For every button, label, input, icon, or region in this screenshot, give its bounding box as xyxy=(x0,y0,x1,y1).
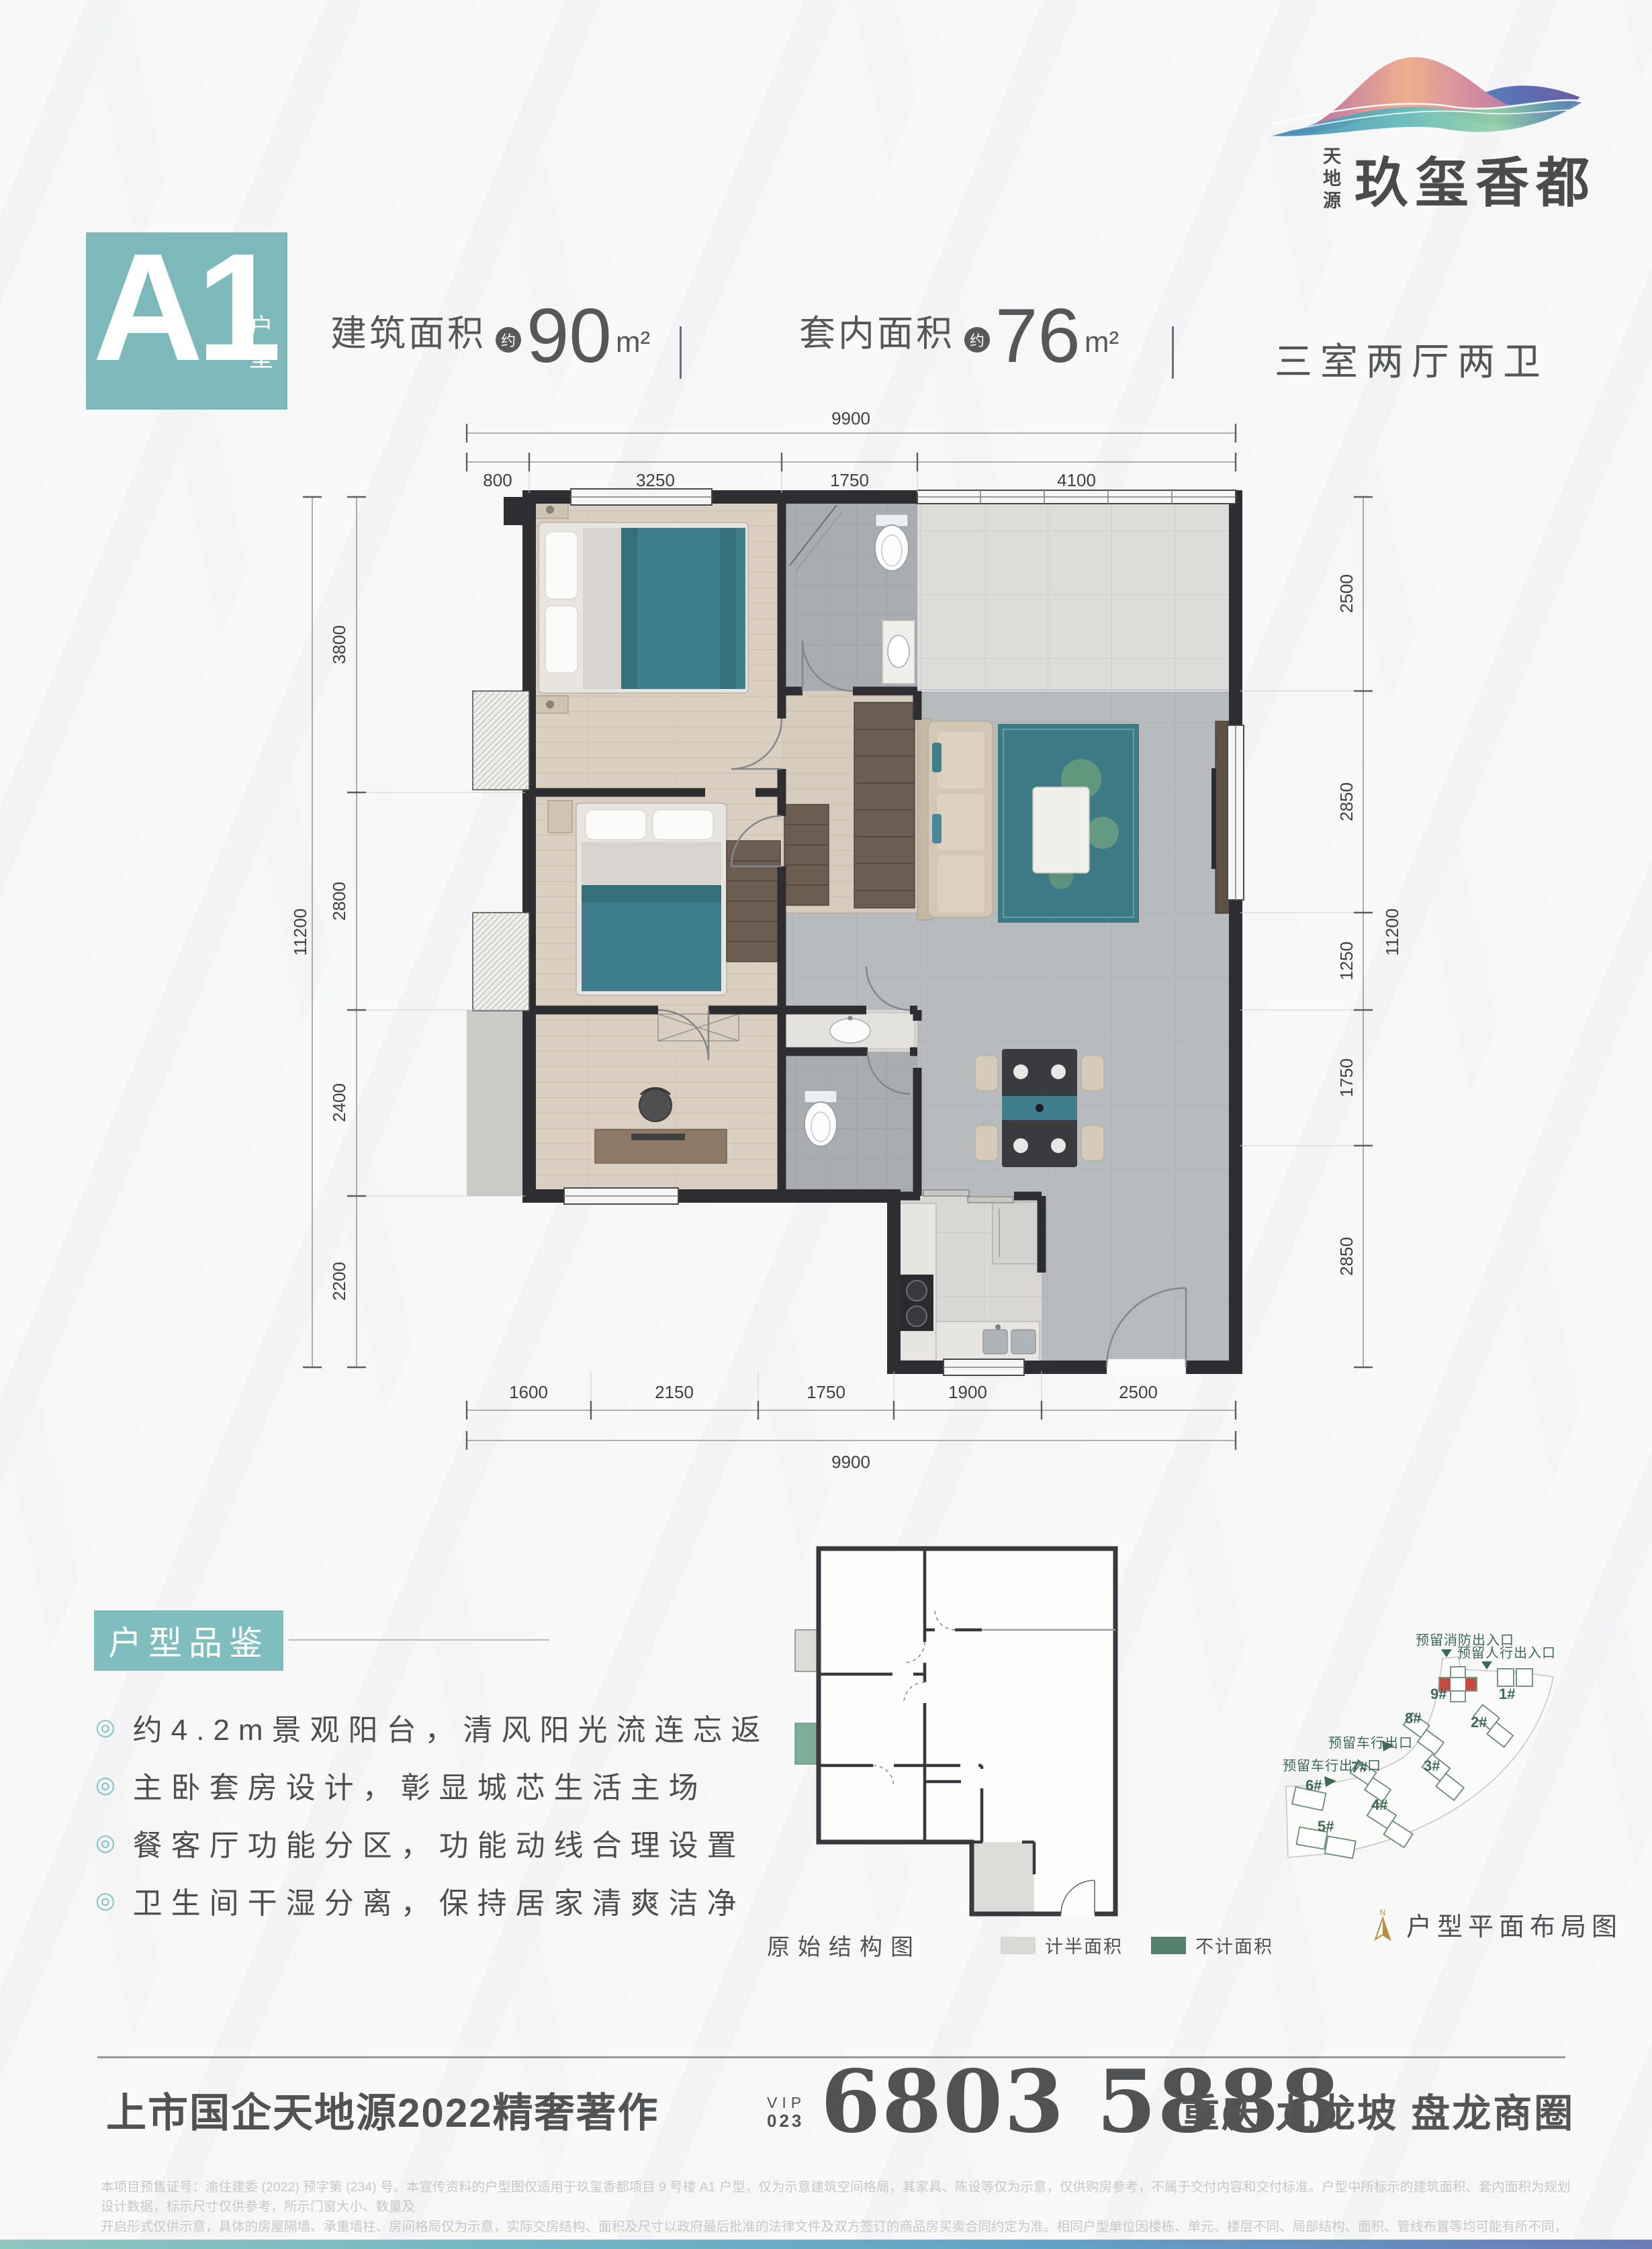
excluded-area-bay xyxy=(795,1723,819,1764)
dim-bottom-seg: 2500 xyxy=(1119,1382,1158,1402)
dim-top-seg: 1750 xyxy=(830,470,869,490)
dim-top-seg: 3250 xyxy=(636,470,675,490)
vip-label: VIP xyxy=(767,2094,806,2111)
brand-name: 玖玺香都 xyxy=(1355,140,1596,218)
footer-slogan: 上市国企天地源2022精奢著作 xyxy=(106,2080,659,2139)
feature-item: ◎ 餐客厅功能分区，功能动线合理设置 xyxy=(95,1821,770,1864)
approx-circle: 约 xyxy=(496,327,521,353)
triangle-down-icon xyxy=(1481,1661,1492,1669)
compass-north: N xyxy=(1380,1908,1386,1917)
building-label: 1# xyxy=(1499,1686,1515,1702)
building-label: 6# xyxy=(1305,1777,1322,1794)
vip-code: 023 xyxy=(767,2111,806,2131)
dim-right-total: 11200 xyxy=(1382,909,1402,956)
dim-left-seg: 2200 xyxy=(329,1262,349,1301)
structure-caption-row: 原始结构图 计半面积 不计面积 xyxy=(767,1929,1273,1962)
dim-bottom-seg: 1600 xyxy=(509,1382,548,1402)
dim-left-total: 11200 xyxy=(290,909,310,956)
legend-half-area: 计半面积 xyxy=(1001,1932,1123,1958)
bay-window xyxy=(473,913,529,1011)
feature-text: 卫生间干湿分离，保持居家清爽洁净 xyxy=(133,1879,745,1922)
building-label: 8# xyxy=(1405,1710,1421,1727)
building-label: 2# xyxy=(1471,1714,1487,1731)
disclaimer: 本项目预售证号：渝住建委 (2022) 预字第 (234) 号。本宣传资料的户型… xyxy=(101,2178,1578,2249)
header-divider xyxy=(1172,326,1174,379)
feature-item: ◎ 主卧套房设计，彰显城芯生活主场 xyxy=(95,1763,770,1806)
dim-top-seg: 4100 xyxy=(1057,470,1096,490)
features-title-rule xyxy=(289,1639,549,1641)
half-area-swatch xyxy=(1001,1937,1036,1954)
metric-value: 90 xyxy=(526,305,612,367)
building-label: 4# xyxy=(1371,1796,1387,1813)
dim-top-total: 9900 xyxy=(831,408,870,428)
brand-vertical-name: 天地源 xyxy=(1318,146,1344,213)
bullet-icon: ◎ xyxy=(95,1716,116,1739)
building-label: 3# xyxy=(1424,1757,1440,1774)
brand-waves-icon xyxy=(1256,17,1592,148)
feature-text: 约4.2m景观阳台，清风阳光流连忘返 xyxy=(133,1706,770,1749)
vehicle-exit-label: 预留车行出口 xyxy=(1328,1735,1413,1751)
bullet-icon: ◎ xyxy=(95,1889,116,1912)
site-caption-row: N 户型平面布局图 xyxy=(1371,1906,1622,1943)
approx-circle: 约 xyxy=(964,327,990,353)
bay-window xyxy=(473,691,529,790)
metric-unit: m² xyxy=(616,326,650,367)
dim-right-seg: 2850 xyxy=(1336,1237,1357,1276)
bullet-icon: ◎ xyxy=(95,1831,116,1854)
metric-built-area: 建筑面积 约 90 m² xyxy=(330,304,650,367)
unit-badge: A1 户型 xyxy=(86,232,287,410)
structure-diagram xyxy=(752,1543,1195,1926)
pedestrian-label: 预留人行出入口 xyxy=(1457,1645,1556,1661)
building-label: 5# xyxy=(1318,1818,1334,1835)
bullet-icon: ◎ xyxy=(95,1774,116,1796)
half-area-balcony xyxy=(972,1842,1034,1914)
legend-excluded-area: 不计面积 xyxy=(1151,1932,1273,1958)
dim-right-seg: 2500 xyxy=(1336,574,1357,613)
dim-right-seg: 1750 xyxy=(1336,1058,1357,1097)
vip-block: VIP 023 xyxy=(767,2094,806,2131)
metric-label: 建筑面积 xyxy=(330,304,486,367)
poster: 天地源 玖玺香都 A1 户型 建筑面积 约 90 m² 套内面积 约 76 m²… xyxy=(0,0,1652,2249)
features-list: ◎ 约4.2m景观阳台，清风阳光流连忘返 ◎ 主卧套房设计，彰显城芯生活主场 ◎… xyxy=(95,1706,770,1937)
dim-right-seg: 1250 xyxy=(1336,942,1357,980)
header-divider xyxy=(680,326,682,379)
floor-plan: 9900 800 3250 1750 4100 11200 3800 2800 … xyxy=(282,403,1410,1477)
site-caption: 户型平面布局图 xyxy=(1406,1906,1622,1943)
dim-left-seg: 3800 xyxy=(329,625,349,664)
bottom-accent-bar xyxy=(0,2240,1652,2249)
half-area-bay xyxy=(795,1630,819,1671)
dim-left-seg: 2800 xyxy=(329,882,349,921)
unit-suffix: 户型 xyxy=(242,314,277,376)
feature-item: ◎ 约4.2m景观阳台，清风阳光流连忘返 xyxy=(95,1706,770,1749)
brand-lockup: 天地源 玖玺香都 xyxy=(1318,140,1596,218)
building-label: 9# xyxy=(1430,1686,1447,1702)
metric-value: 76 xyxy=(995,305,1081,367)
compass-icon: N xyxy=(1371,1907,1394,1942)
disclaimer-line-1: 本项目预售证号：渝住建委 (2022) 预字第 (234) 号。本宣传资料的户型… xyxy=(101,2178,1578,2217)
dim-bottom-total: 9900 xyxy=(831,1452,870,1472)
metric-inner-area: 套内面积 约 76 m² xyxy=(799,304,1119,367)
dim-top-seg: 800 xyxy=(483,470,512,490)
legend-label: 不计面积 xyxy=(1195,1932,1273,1958)
feature-item: ◎ 卫生间干湿分离，保持居家清爽洁净 xyxy=(95,1879,770,1922)
dim-bottom-seg: 1750 xyxy=(807,1382,845,1402)
triangle-down-icon xyxy=(1441,1649,1452,1657)
location-text: 重庆 九龙坡 盘龙商圈 xyxy=(1181,2082,1575,2138)
features-title-box: 户型品鉴 xyxy=(94,1610,283,1671)
metric-unit: m² xyxy=(1085,326,1119,367)
dim-right-seg: 2850 xyxy=(1336,782,1357,821)
master-bed xyxy=(532,501,748,713)
feature-text: 主卧套房设计，彰显城芯生活主场 xyxy=(133,1763,707,1806)
dim-bottom-seg: 2150 xyxy=(655,1382,694,1402)
metric-label: 套内面积 xyxy=(799,304,955,367)
excluded-area-swatch xyxy=(1151,1937,1186,1954)
dim-left-seg: 2400 xyxy=(329,1083,349,1122)
site-plan: 9# 1# 8# 2# 7# 3# 6# 4# 5# 预留消防出入口 预留人行出… xyxy=(1263,1565,1639,1914)
dim-bottom-seg: 1900 xyxy=(948,1382,987,1402)
room-layout-text: 三室两厅两卫 xyxy=(1275,332,1549,386)
features-title: 户型品鉴 xyxy=(108,1616,269,1665)
structure-caption: 原始结构图 xyxy=(767,1929,921,1962)
feature-text: 餐客厅功能分区，功能动线合理设置 xyxy=(133,1821,745,1864)
vehicle-entrance-label: 预留车行出入口 xyxy=(1283,1758,1381,1774)
legend-label: 计半面积 xyxy=(1045,1932,1123,1958)
